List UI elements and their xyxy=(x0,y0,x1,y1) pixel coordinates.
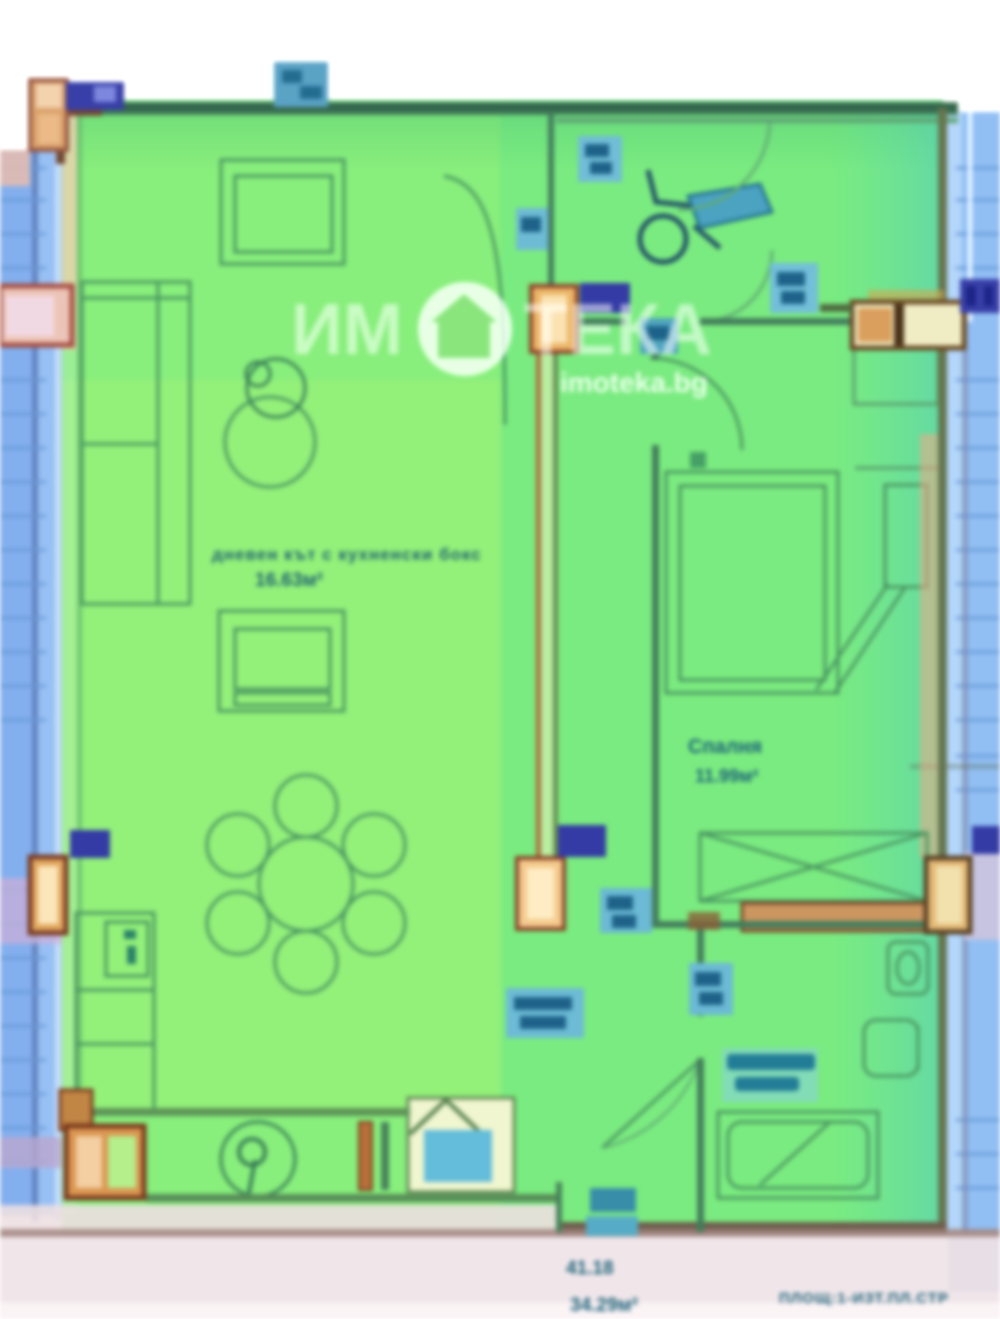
svg-text:Спалня: Спалня xyxy=(688,736,762,758)
svg-text:ТЕКА: ТЕКА xyxy=(524,290,712,370)
svg-text:34.29м²: 34.29м² xyxy=(570,1295,638,1316)
svg-text:41.18: 41.18 xyxy=(566,1258,614,1279)
svg-text:ПЛОЩ:1-ИЗТ.ПЛ.СТР: ПЛОЩ:1-ИЗТ.ПЛ.СТР xyxy=(779,1290,949,1307)
svg-text:11.99м²: 11.99м² xyxy=(695,766,758,786)
svg-text:16.63м²: 16.63м² xyxy=(255,570,323,591)
svg-text:imoteka.bg: imoteka.bg xyxy=(560,367,708,398)
svg-text:ИМ: ИМ xyxy=(291,290,403,370)
svg-text:дневен кът с кухненски бокс: дневен кът с кухненски бокс xyxy=(212,545,482,564)
